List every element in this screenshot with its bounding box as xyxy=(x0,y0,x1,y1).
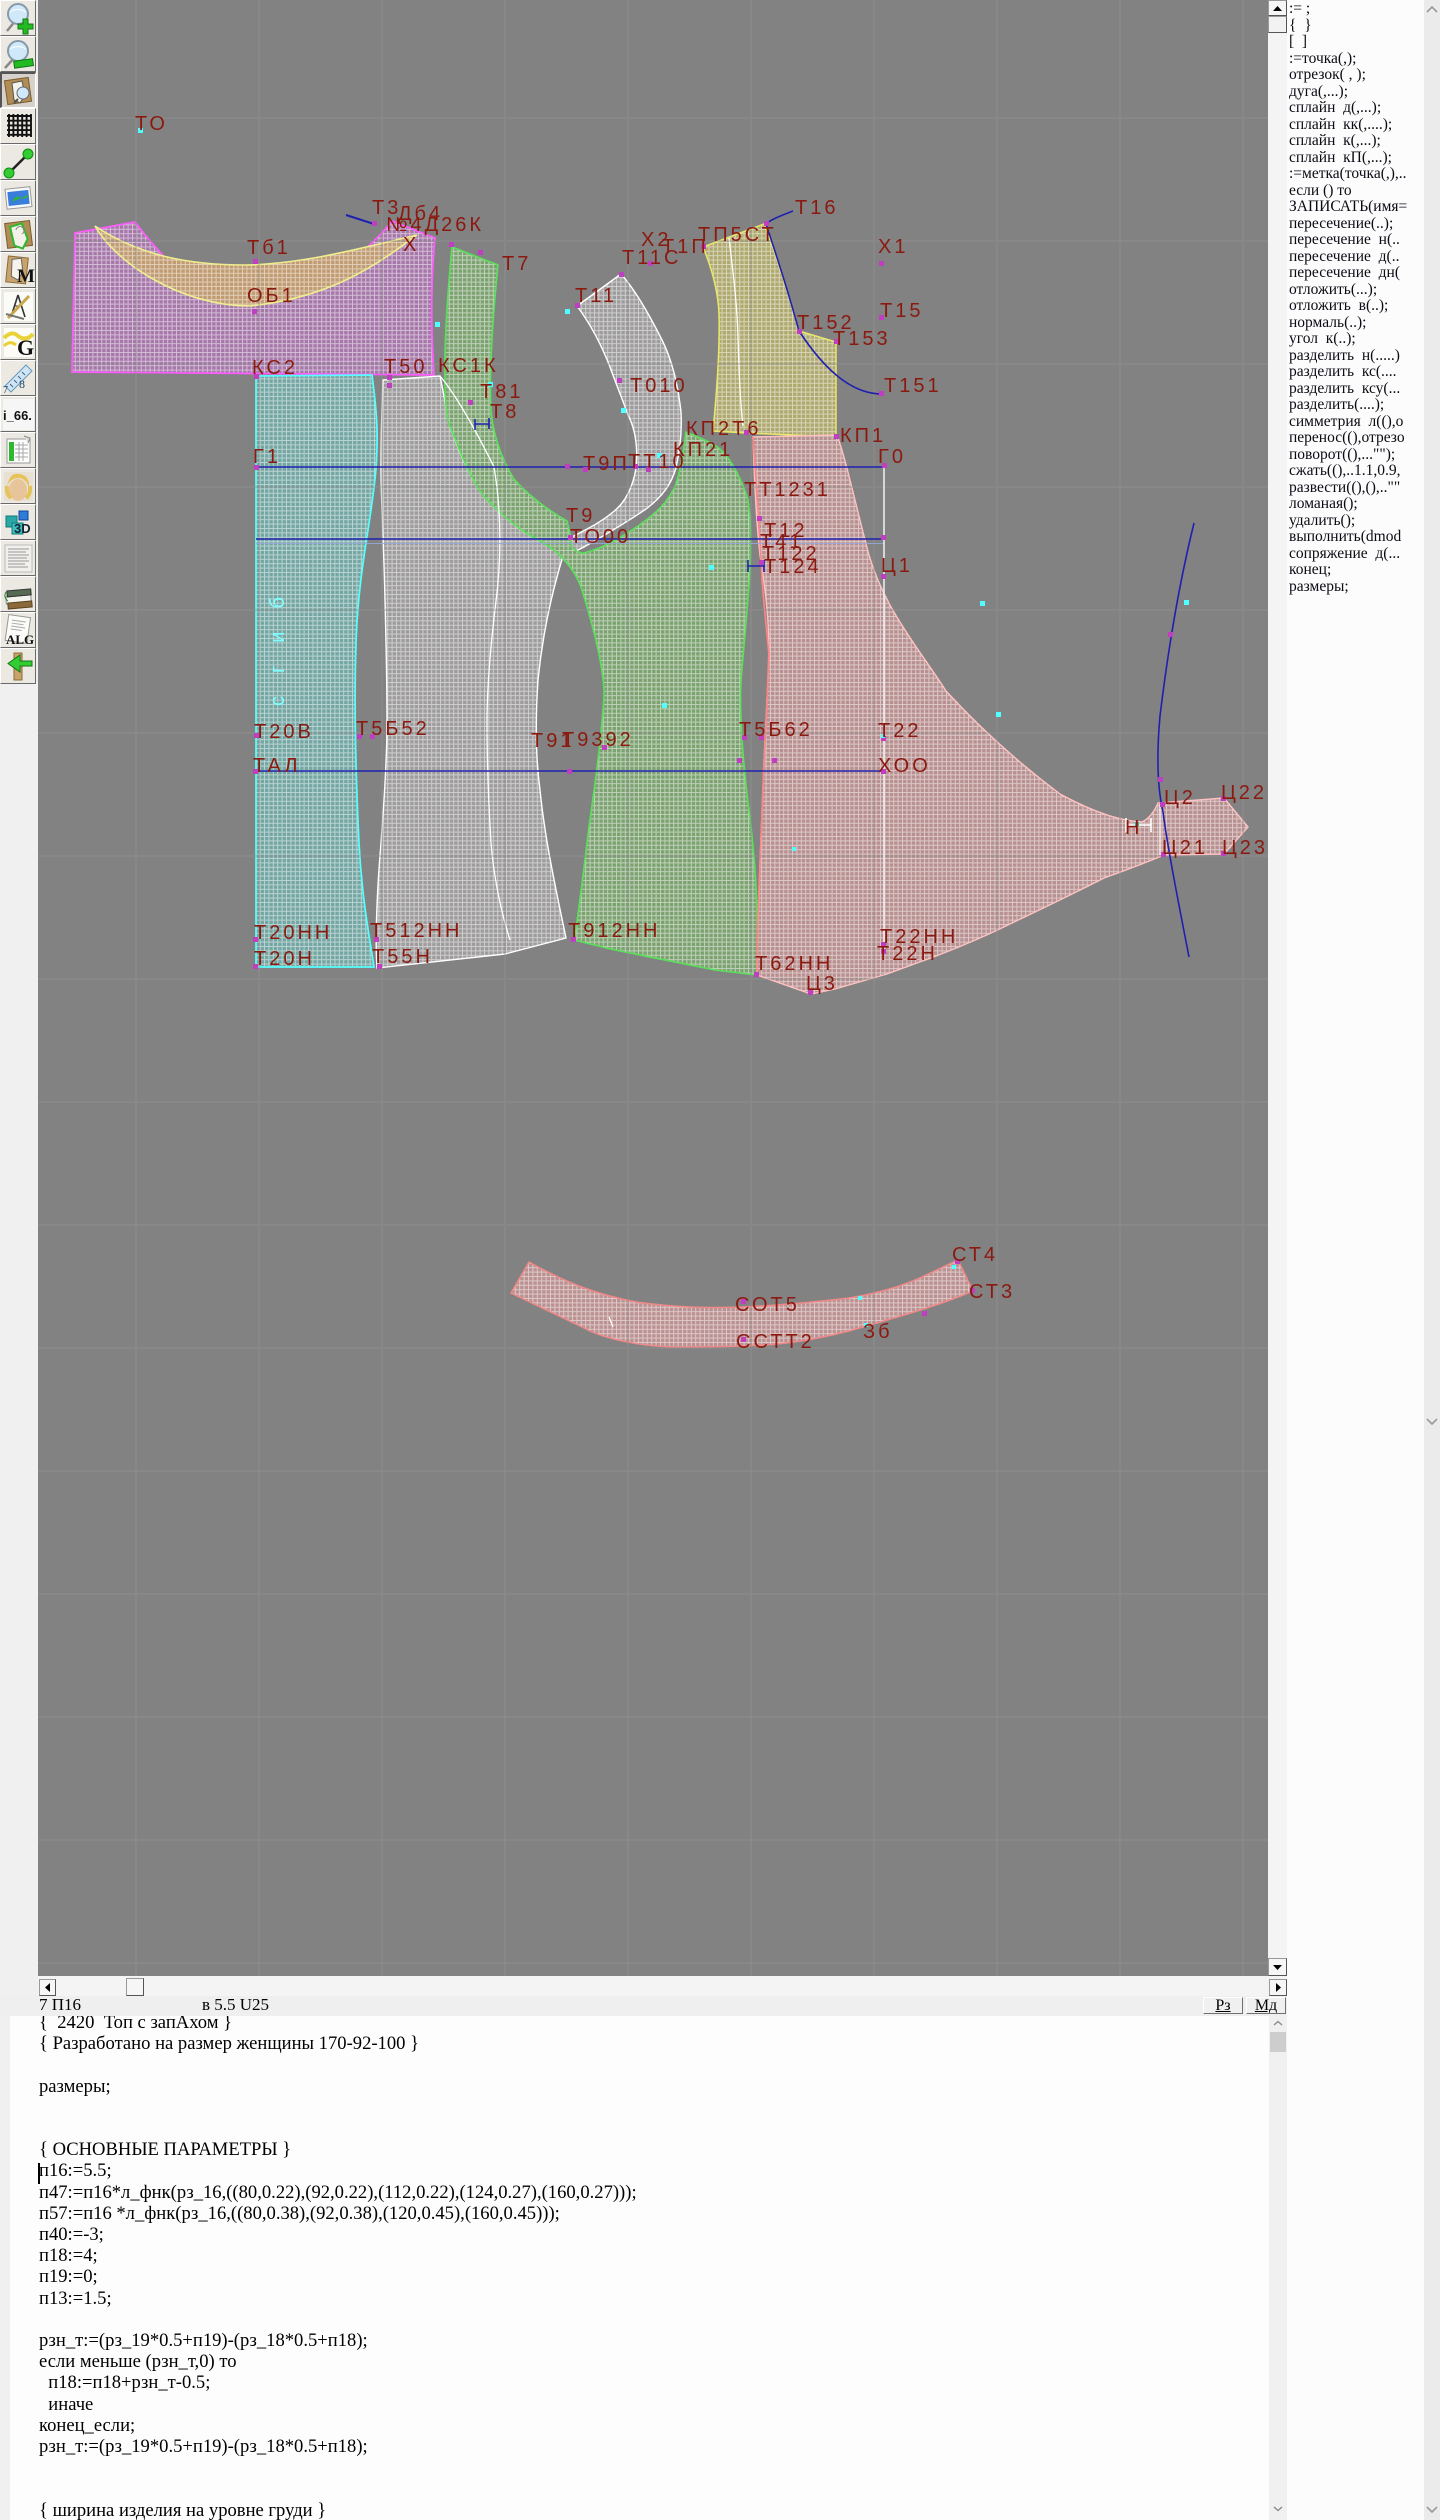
svg-text:i_66.: i_66. xyxy=(3,408,32,423)
svg-text:Т11: Т11 xyxy=(575,285,617,307)
svg-text:Ц3: Ц3 xyxy=(806,973,838,995)
svg-text:Т8: Т8 xyxy=(490,401,519,423)
svg-text:Т9392: Т9392 xyxy=(562,729,634,751)
svg-text:3D: 3D xyxy=(14,521,31,536)
svg-text:ТТ1231: ТТ1231 xyxy=(744,479,831,501)
svg-text:ТАЛ: ТАЛ xyxy=(253,755,300,777)
svg-text:сгиб: сгиб xyxy=(267,574,289,706)
svg-text:СТ4: СТ4 xyxy=(952,1244,998,1266)
svg-text:Ц2: Ц2 xyxy=(1164,787,1196,809)
svg-text:КП2Т6: КП2Т6 xyxy=(686,418,762,440)
svg-text:Т62НН: Т62НН xyxy=(755,953,833,975)
svg-text:Т22Н: Т22Н xyxy=(877,943,938,965)
svg-text:Т5Б62: Т5Б62 xyxy=(739,719,813,741)
svg-text:ТО: ТО xyxy=(135,113,168,135)
svg-text:Т151: Т151 xyxy=(884,375,942,397)
svg-text:ALG: ALG xyxy=(6,632,34,647)
svg-text:Т9: Т9 xyxy=(566,505,595,527)
svg-text:Т55Н: Т55Н xyxy=(372,946,433,968)
svg-text:M: M xyxy=(17,266,35,287)
svg-text:Ц23: Ц23 xyxy=(1222,837,1268,859)
svg-text:СОТ5: СОТ5 xyxy=(735,1294,800,1316)
svg-text:Т20НН: Т20НН xyxy=(254,922,332,944)
svg-text:Г0: Г0 xyxy=(878,446,906,468)
svg-text:Ц1: Ц1 xyxy=(881,555,913,577)
svg-text:ССТТ2: ССТТ2 xyxy=(736,1331,815,1353)
svg-text:Т153: Т153 xyxy=(833,328,891,350)
svg-text:Г1: Г1 xyxy=(253,446,281,468)
svg-text:Х1: Х1 xyxy=(878,236,908,258)
svg-text:7: 7 xyxy=(3,385,8,395)
svg-text:ТО00: ТО00 xyxy=(570,526,631,548)
svg-text:Т16: Т16 xyxy=(795,197,838,219)
svg-text:Т5Б52: Т5Б52 xyxy=(356,718,430,740)
svg-text:8: 8 xyxy=(19,377,25,391)
svg-text:ОБ1: ОБ1 xyxy=(247,285,296,307)
svg-text:Зб: Зб xyxy=(863,1321,893,1343)
svg-text:Т010: Т010 xyxy=(630,375,688,397)
svg-text:G: G xyxy=(17,335,34,359)
svg-text:Тб1: Тб1 xyxy=(247,237,291,259)
svg-text:Х: Х xyxy=(403,234,419,256)
svg-text:КС2: КС2 xyxy=(252,357,298,379)
svg-text:Т20Н: Т20Н xyxy=(254,948,315,970)
svg-text:Т7: Т7 xyxy=(502,253,531,275)
svg-text:Т9П: Т9П xyxy=(583,453,630,475)
svg-text:Т20В: Т20В xyxy=(254,721,314,743)
svg-text:№4Д26К: №4Д26К xyxy=(386,214,484,236)
svg-text:ТП5СТ: ТП5СТ xyxy=(698,224,777,246)
svg-text:Т81: Т81 xyxy=(480,381,523,403)
svg-text:ТТ10: ТТ10 xyxy=(628,451,687,473)
svg-text:Т512НН: Т512НН xyxy=(370,920,462,942)
svg-text:ХОО: ХОО xyxy=(878,755,931,777)
svg-text:Т124: Т124 xyxy=(764,556,822,578)
svg-text:СТ3: СТ3 xyxy=(969,1281,1015,1303)
svg-text:Ц21: Ц21 xyxy=(1162,837,1208,859)
svg-text:Т912НН: Т912НН xyxy=(568,920,660,942)
svg-text:Ц22: Ц22 xyxy=(1221,782,1267,804)
svg-text:Т15: Т15 xyxy=(880,300,923,322)
svg-text:КП1: КП1 xyxy=(840,425,886,447)
svg-text:КС1К: КС1К xyxy=(438,355,499,377)
svg-text:Т22: Т22 xyxy=(878,720,921,742)
svg-text:Т50: Т50 xyxy=(384,356,427,378)
svg-text:Н: Н xyxy=(1125,817,1142,839)
